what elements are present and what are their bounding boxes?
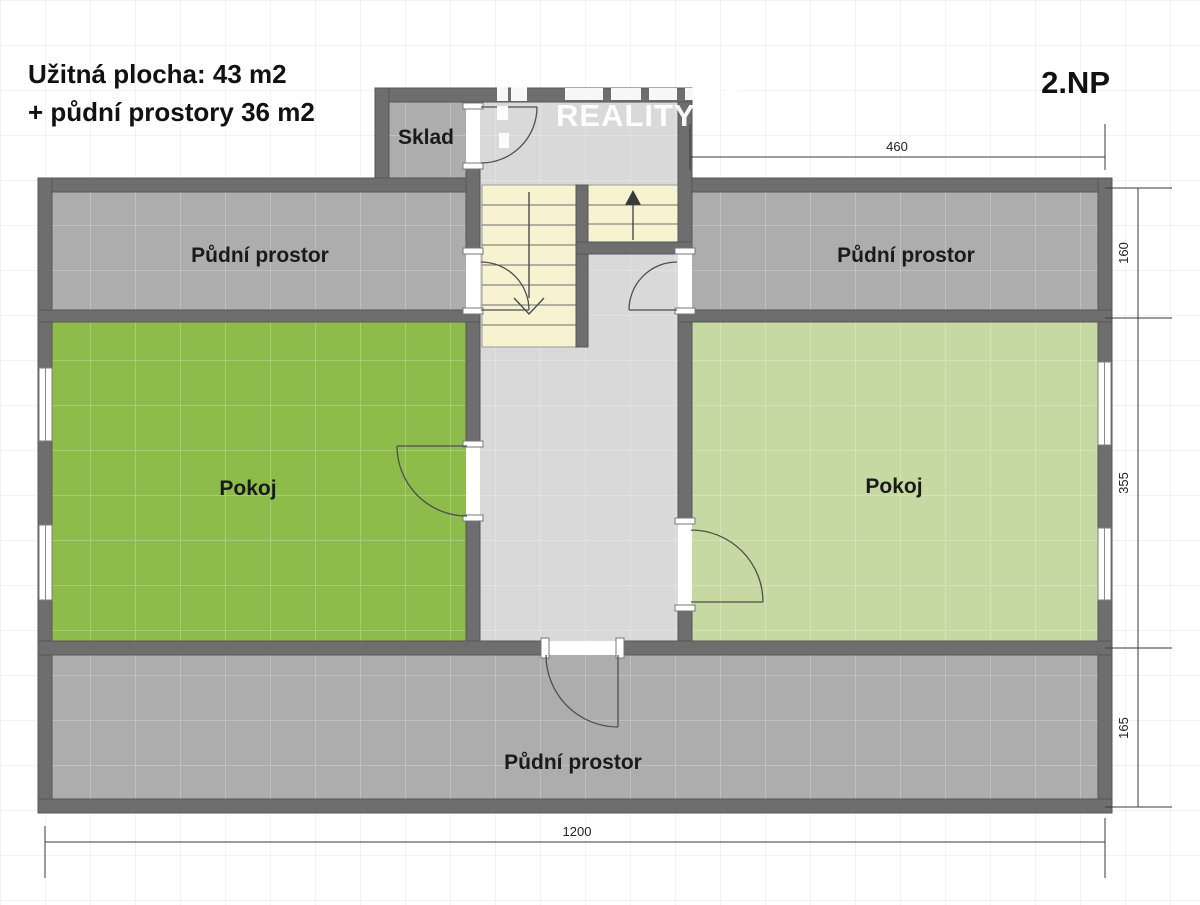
dim-label-160: 160 (1116, 242, 1131, 264)
title-line2: + půdní prostory 36 m2 (28, 97, 315, 127)
door-gap-attic-right (678, 252, 692, 310)
door-gap-attic-left (466, 252, 480, 310)
floorplan-drawing: 460 160 355 165 1200 Sklad Půdní prostor… (0, 0, 1200, 905)
wall-col-left-4 (466, 517, 480, 655)
door-gap-hall-bottom (545, 641, 620, 655)
dim-label-1200: 1200 (563, 824, 592, 839)
wall-attic-left-bottom (38, 310, 480, 322)
wall-sklad-left (375, 88, 389, 178)
wall-attic-right-bottom (678, 310, 1112, 322)
wall-stair-middle (576, 185, 588, 347)
floorplan-canvas: 460 160 355 165 1200 Sklad Půdní prostor… (0, 0, 1200, 905)
wall-top-right (688, 178, 1112, 192)
door-gap-room-right (678, 522, 692, 607)
wall-col-left-3 (466, 310, 480, 445)
dim-label-355: 355 (1116, 472, 1131, 494)
wall-col-left-2 (466, 165, 480, 252)
title-line1: Užitná plocha: 43 m2 (28, 59, 287, 89)
room-label-attic-right: Půdní prostor (837, 244, 975, 267)
room-label-pokoj-left: Pokoj (219, 477, 276, 500)
door-gap-room-left (466, 445, 480, 517)
wall-rooms-bottom-right (620, 641, 1112, 655)
room-label-sklad: Sklad (398, 126, 454, 149)
room-label-pokoj-right: Pokoj (865, 475, 922, 498)
dim-label-460: 460 (886, 139, 908, 154)
door-gap-sklad (466, 107, 480, 165)
wall-left (38, 178, 52, 813)
floor-label: 2.NP (1041, 65, 1110, 100)
wall-bottom (38, 799, 1112, 813)
room-label-attic-left: Půdní prostor (191, 244, 329, 267)
dim-label-165: 165 (1116, 717, 1131, 739)
room-label-attic-bottom: Půdní prostor (504, 751, 642, 774)
wall-right (1098, 178, 1112, 813)
wall-col-right-2 (678, 310, 692, 522)
wall-top-left (38, 178, 466, 192)
watermark-text: REALITY (556, 98, 696, 133)
wall-rooms-bottom-left (38, 641, 545, 655)
